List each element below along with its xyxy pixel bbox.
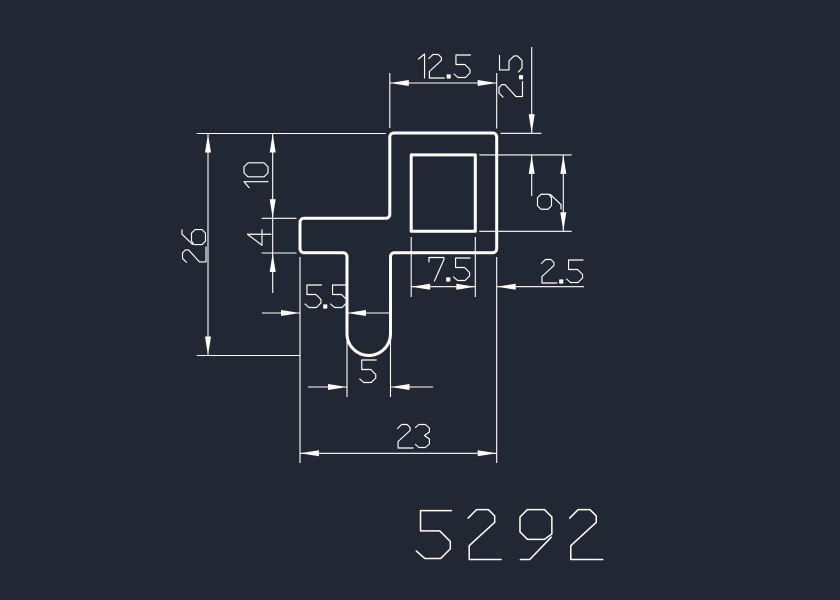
cad-drawing-viewport: 5292	[0, 0, 840, 600]
drawing-background	[0, 0, 840, 600]
cad-drawing-canvas	[0, 0, 840, 600]
